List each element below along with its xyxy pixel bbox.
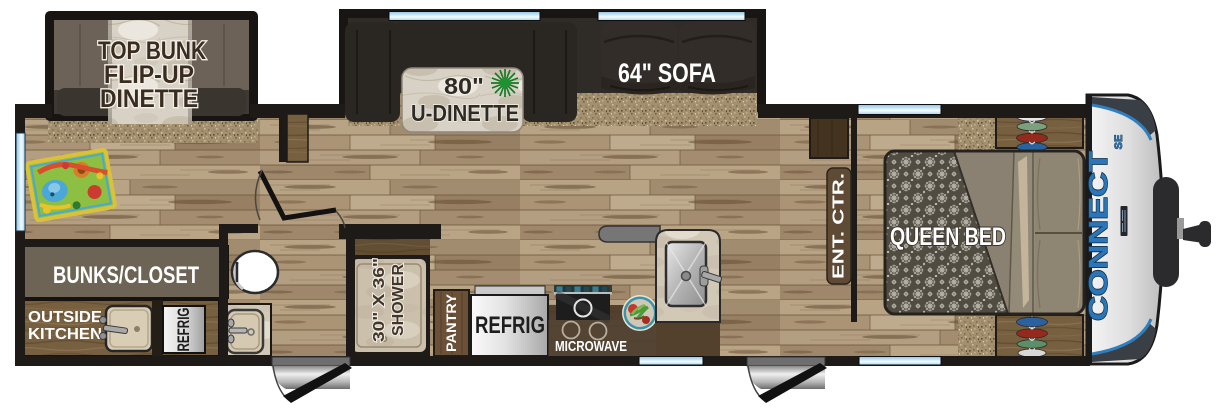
svg-text:SHOWER: SHOWER bbox=[390, 264, 407, 336]
svg-text:80": 80" bbox=[444, 73, 484, 99]
svg-text:64" SOFA: 64" SOFA bbox=[618, 58, 716, 88]
svg-text:MICROWAVE: MICROWAVE bbox=[555, 339, 627, 355]
svg-text:U-DINETTE: U-DINETTE bbox=[411, 100, 519, 126]
svg-text:SE: SE bbox=[1113, 135, 1125, 150]
svg-text:ENT. CTR.: ENT. CTR. bbox=[831, 173, 848, 279]
svg-text:PANTRY: PANTRY bbox=[443, 293, 459, 352]
svg-text:OUTSIDE: OUTSIDE bbox=[28, 309, 102, 326]
svg-text:REFRIG: REFRIG bbox=[475, 312, 545, 339]
svg-text:BUNKS/CLOSET: BUNKS/CLOSET bbox=[53, 262, 199, 289]
svg-text:DINETTE: DINETTE bbox=[100, 85, 198, 113]
svg-text:KITCHEN: KITCHEN bbox=[28, 326, 102, 343]
svg-text:CONNECT: CONNECT bbox=[1083, 151, 1113, 321]
svg-text:QUEEN BED: QUEEN BED bbox=[890, 223, 1006, 251]
svg-text:30" X 36": 30" X 36" bbox=[371, 258, 388, 342]
svg-text:REFRIG: REFRIG bbox=[174, 308, 193, 352]
